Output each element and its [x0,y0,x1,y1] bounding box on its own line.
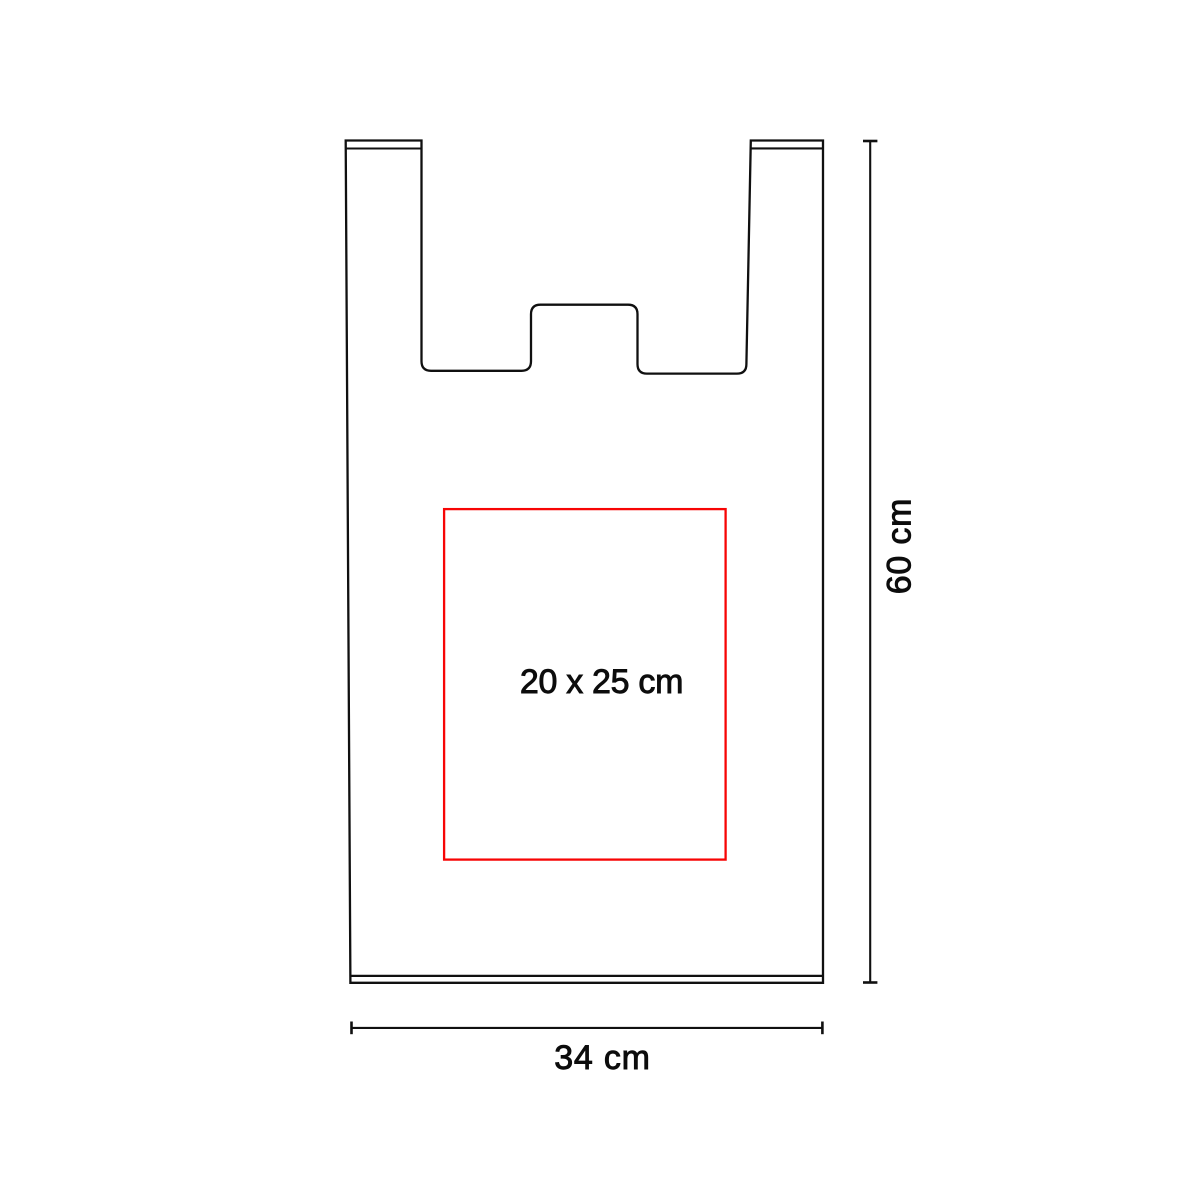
svg-text:60 cm: 60 cm [880,498,918,595]
svg-text:20 x 25 cm: 20 x 25 cm [520,663,683,701]
svg-text:34 cm: 34 cm [554,1039,651,1077]
